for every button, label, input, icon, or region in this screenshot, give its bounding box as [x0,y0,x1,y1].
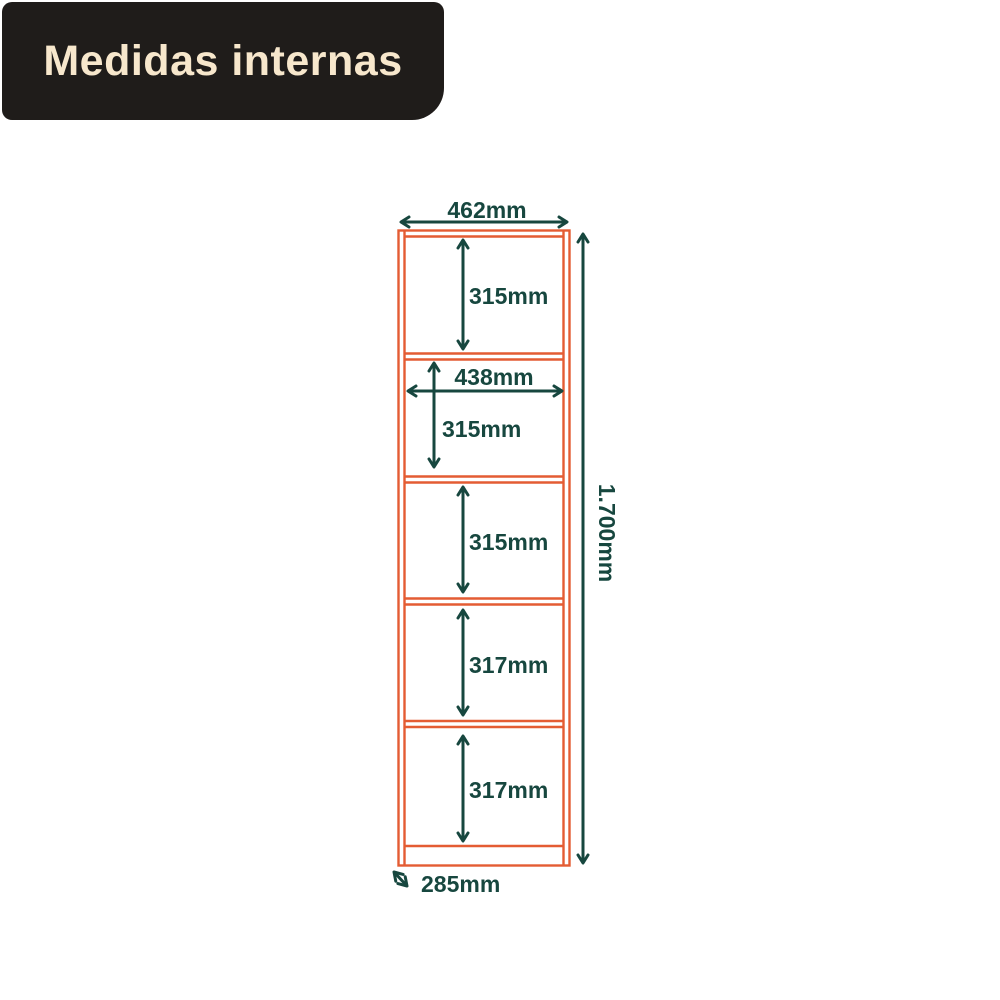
compartment-5-height-label: 317mm [469,777,548,803]
width-dimension-label: 462mm [447,197,526,223]
inner-width-dimension-label: 438mm [454,364,533,390]
depth-dimension-arrow [394,872,407,886]
compartment-4-height-label: 317mm [469,652,548,678]
depth-dimension-label: 285mm [421,871,500,897]
compartment-1-height-label: 315mm [469,283,548,309]
internal-dimensions-diagram: 462mm 1.700mm 315mm 438mm 315mm 315mm 31… [0,0,1000,1000]
compartment-3-height-label: 315mm [469,529,548,555]
height-dimension-label: 1.700mm [594,484,620,582]
dimension-annotations: 462mm 1.700mm 315mm 438mm 315mm 315mm 31… [394,197,620,897]
compartment-2-height-label: 315mm [442,416,521,442]
product-dimension-sheet: Medidas internas [0,0,1000,1000]
